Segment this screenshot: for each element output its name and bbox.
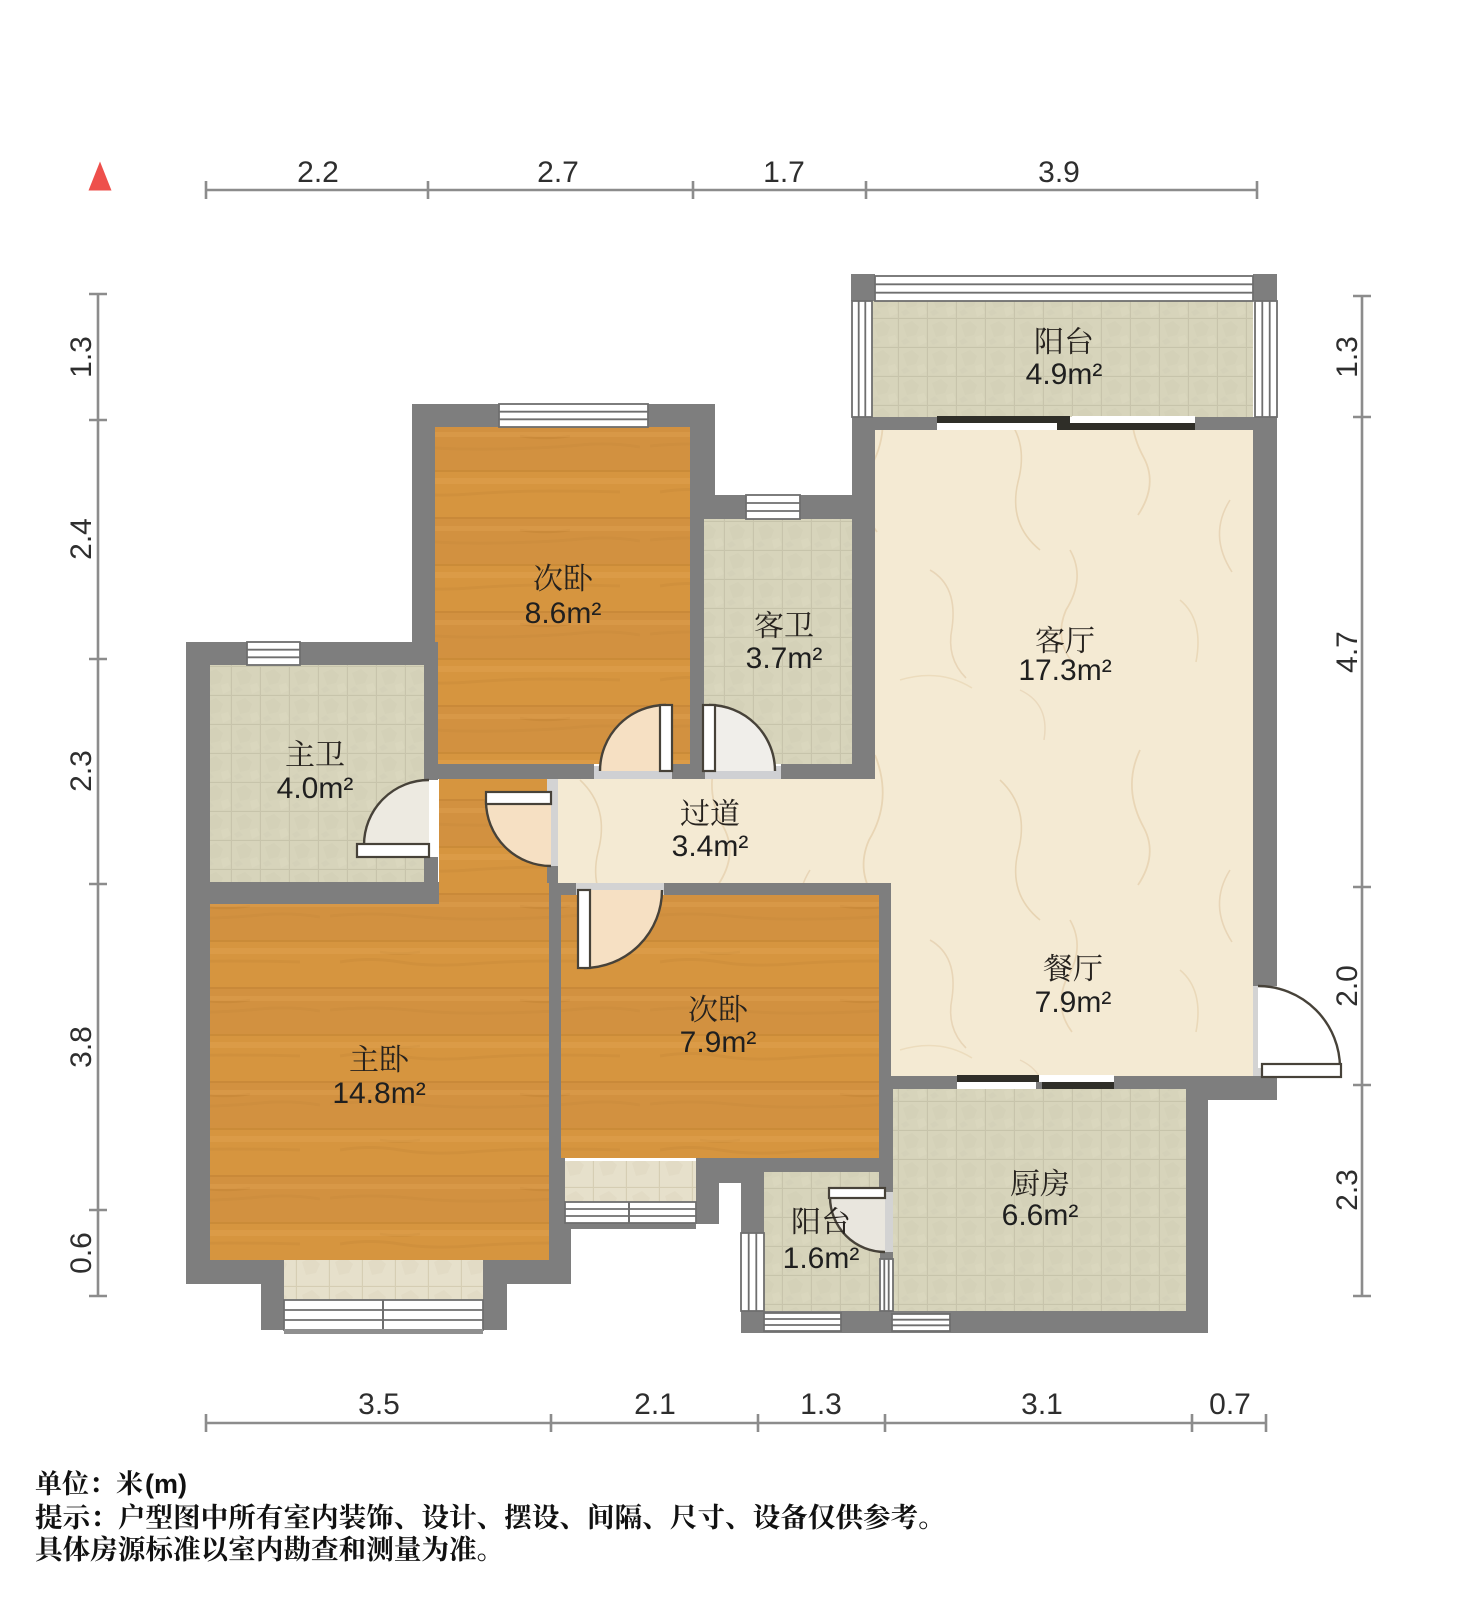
svg-text:(m): (m) [145, 1469, 187, 1499]
svg-text:14.8m²: 14.8m² [332, 1077, 425, 1110]
svg-text:3.9: 3.9 [1038, 156, 1080, 189]
svg-text:2.7: 2.7 [537, 156, 579, 189]
svg-text:3.7m²: 3.7m² [746, 642, 823, 675]
svg-text:2.0: 2.0 [1331, 965, 1364, 1007]
svg-text:1.6m²: 1.6m² [783, 1242, 860, 1275]
svg-text:8.6m²: 8.6m² [525, 597, 602, 630]
svg-text:0.6: 0.6 [65, 1232, 98, 1274]
svg-text:2.2: 2.2 [297, 156, 339, 189]
svg-text:1.3: 1.3 [65, 336, 98, 378]
svg-text:1.3: 1.3 [1331, 336, 1364, 378]
svg-text:4.0m²: 4.0m² [277, 772, 354, 805]
svg-text:1.3: 1.3 [800, 1388, 842, 1421]
svg-text:2.1: 2.1 [634, 1388, 676, 1421]
svg-text:7.9m²: 7.9m² [680, 1026, 757, 1059]
svg-text:2.4: 2.4 [65, 518, 98, 560]
svg-text:1.7: 1.7 [763, 156, 805, 189]
svg-text:0.7: 0.7 [1209, 1388, 1251, 1421]
svg-text:3.4m²: 3.4m² [672, 830, 749, 863]
svg-text:6.6m²: 6.6m² [1002, 1199, 1079, 1232]
svg-text:4.7: 4.7 [1331, 631, 1364, 673]
svg-text:3.5: 3.5 [358, 1388, 400, 1421]
svg-text:17.3m²: 17.3m² [1018, 654, 1111, 687]
svg-text:4.9m²: 4.9m² [1026, 358, 1103, 391]
svg-text:3.1: 3.1 [1021, 1388, 1063, 1421]
svg-text:3.8: 3.8 [65, 1026, 98, 1068]
svg-text:7.9m²: 7.9m² [1035, 986, 1112, 1019]
svg-text:2.3: 2.3 [1331, 1169, 1364, 1211]
svg-text:2.3: 2.3 [65, 750, 98, 792]
